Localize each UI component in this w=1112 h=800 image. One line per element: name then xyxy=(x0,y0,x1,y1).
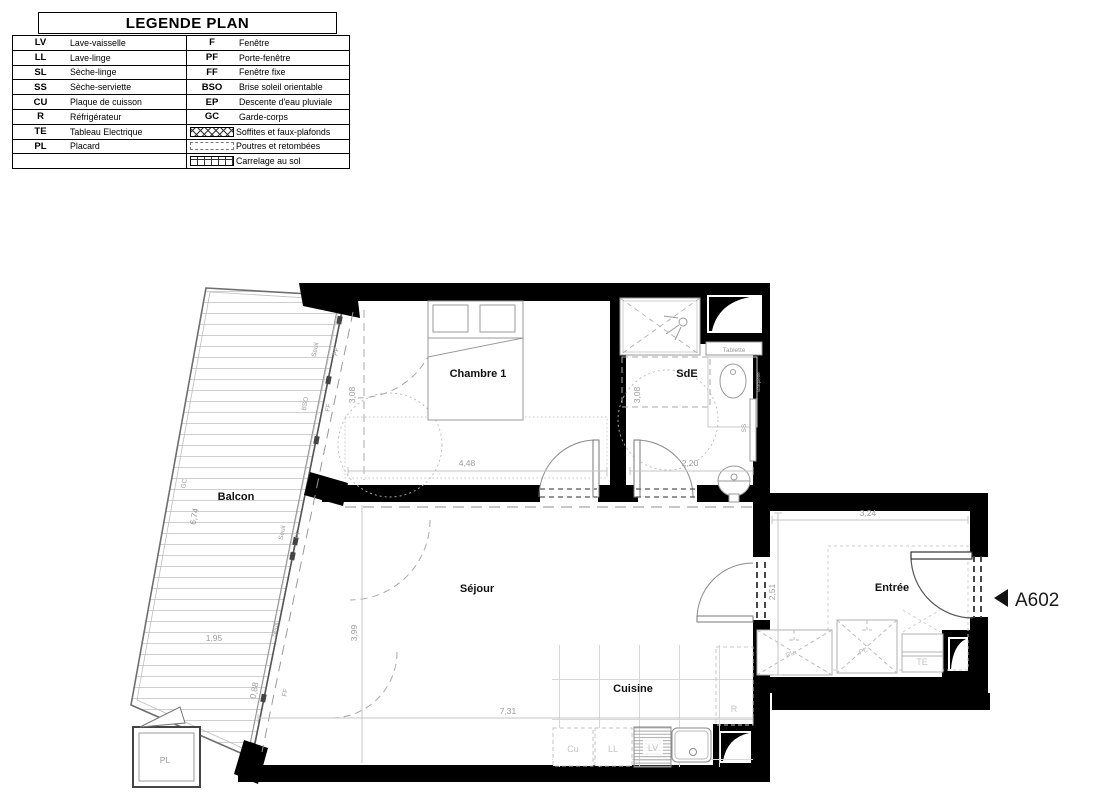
room-label-cuisine: Cuisine xyxy=(613,683,653,695)
legend-label: Lave-vaisselle xyxy=(68,38,186,48)
legend-row: CUPlaque de cuisson EPDescente d'eau plu… xyxy=(13,95,349,110)
legend-row: LVLave-vaisselle FFenêtre xyxy=(13,36,349,51)
wall-entree-right-upper xyxy=(970,511,988,557)
thresholds xyxy=(757,556,981,619)
legend-abbr: F xyxy=(187,37,237,48)
legend-label: Sèche-linge xyxy=(68,67,186,77)
legend-row: SSSèche-serviette BSOBrise soleil orient… xyxy=(13,80,349,95)
bed xyxy=(428,301,523,420)
balcony xyxy=(131,288,345,758)
hob-label: Cu xyxy=(567,744,579,754)
door-leaf-entrance xyxy=(911,552,972,559)
legend-abbr: SL xyxy=(13,67,68,78)
legend-abbr: CU xyxy=(13,97,68,108)
tablette-label: Tablette xyxy=(723,347,746,354)
wall-mid-1 xyxy=(322,485,540,502)
dim-entree-height: 2,51 xyxy=(767,583,777,600)
legend-label: Poutres et retombées xyxy=(234,141,349,151)
legend-label: Tableau Electrique xyxy=(68,127,186,137)
washer-label: LL xyxy=(608,744,618,754)
dim-sejour-height: 3,99 xyxy=(349,624,359,641)
fridge-label: R xyxy=(731,704,738,714)
legend-row: Carrelage au sol xyxy=(13,154,349,168)
entree-fixtures xyxy=(757,610,943,675)
legend-label: Soffites et faux-plafonds xyxy=(234,127,349,137)
facade-ff-2: FF xyxy=(281,688,289,697)
balcony-deck xyxy=(131,288,345,758)
towel-radiator-label: SS xyxy=(741,423,748,432)
room-label-chambre: Chambre 1 xyxy=(450,368,507,380)
legend-abbr: LV xyxy=(13,37,68,48)
legend-abbr: PF xyxy=(187,52,237,63)
dim-chambre-height: 3,08 xyxy=(347,386,357,403)
dim-balcon-width: 1,95 xyxy=(206,633,223,643)
bed-outline xyxy=(428,301,523,420)
legend-row: TETableau Electrique Soffites et faux-pl… xyxy=(13,125,349,140)
pl-balcon-label: PL xyxy=(160,755,171,765)
legend-label: Brise soleil orientable xyxy=(237,82,349,92)
dishwasher-label: LV xyxy=(648,743,658,753)
legend-label: Fenêtre xyxy=(237,38,349,48)
door-arc-entrance xyxy=(911,556,973,618)
legend-label: Carrelage au sol xyxy=(234,156,349,166)
window-swing-sejour-2 xyxy=(331,652,397,718)
legend-label: Garde-corps xyxy=(237,112,349,122)
legend-label: Réfrigérateur xyxy=(68,112,186,122)
wall-facade-junction xyxy=(304,472,348,506)
legend-abbr: R xyxy=(13,111,68,122)
hatch-x-symbol xyxy=(190,127,234,137)
legend-label: Descente d'eau pluviale xyxy=(237,97,349,107)
legend-abbr: TE xyxy=(13,126,68,137)
legend-label: Plaque de cuisson xyxy=(68,97,186,107)
legend-label: Sèche-serviette xyxy=(68,82,186,92)
door-leaf-sejour-entree xyxy=(697,616,753,622)
legend-label: Fenêtre fixe xyxy=(237,67,349,77)
facade-pf-2: PF xyxy=(294,530,302,540)
facade-pf-1: PF xyxy=(332,347,340,357)
dim-sde-height: 3,08 xyxy=(632,386,642,403)
legend-label: Placard xyxy=(68,141,186,151)
dim-sde-width: 2,20 xyxy=(682,458,699,468)
grid-symbol xyxy=(190,156,234,166)
room-label-sde: SdE xyxy=(676,368,697,380)
legend-abbr: GC xyxy=(187,111,237,122)
floor-plan-page: LEGENDE PLAN LVLave-vaisselle FFenêtre L… xyxy=(0,0,1112,800)
window-swing-chambre xyxy=(358,318,438,398)
legend-abbr: SS xyxy=(13,82,68,93)
unit-arrow-icon xyxy=(994,589,1008,607)
vasque-note-label: Barquette xyxy=(756,372,761,392)
dim-chambre-width: 4,48 xyxy=(459,458,476,468)
unit-label: A602 xyxy=(1015,590,1059,611)
legend-row: RRéfrigérateur GCGarde-corps xyxy=(13,110,349,125)
wall-entree-bottom xyxy=(755,677,988,693)
legend-label: Lave-linge xyxy=(68,53,186,63)
legend-abbr: FF xyxy=(187,67,237,78)
room-label-balcon: Balcon xyxy=(218,491,255,503)
room-label-sejour: Séjour xyxy=(460,583,495,595)
legend-abbr: PL xyxy=(13,141,68,152)
legend-row: PLPlacard Poutres et retombées xyxy=(13,140,349,155)
facade-ff-1: FF xyxy=(324,403,332,412)
turning-circle-chambre xyxy=(338,393,442,497)
legend-abbr: EP xyxy=(187,97,237,108)
legend-table: LVLave-vaisselle FFenêtre LLLave-linge P… xyxy=(12,35,350,169)
facade-seuil-3: Seuil xyxy=(271,621,281,637)
legend-abbr: BSO xyxy=(187,82,237,93)
legend-row: SLSèche-linge FFFenêtre fixe xyxy=(13,66,349,81)
te-dashes xyxy=(903,610,940,632)
dim-entree-width: 3,24 xyxy=(860,508,877,518)
wall-mid-2 xyxy=(598,485,638,502)
wall-bottom xyxy=(238,765,770,782)
legend-label: Porte-fenêtre xyxy=(237,53,349,63)
legend-title: LEGENDE PLAN xyxy=(38,12,337,34)
room-label-entree: Entrée xyxy=(875,582,909,594)
unit-tag: A602 xyxy=(994,589,1059,611)
turning-circle-sde xyxy=(618,370,718,470)
towel-radiator xyxy=(750,399,756,461)
dashed-symbol xyxy=(190,142,234,150)
door-arc-sejour-entree xyxy=(697,563,753,619)
legend-row: LLLave-linge PFPorte-fenêtre xyxy=(13,51,349,66)
toilet-stem xyxy=(729,494,739,502)
legend-abbr: LL xyxy=(13,52,68,63)
electrical-panel-label: TE xyxy=(916,657,928,667)
wall-entree-bottom-step xyxy=(772,693,990,710)
sink xyxy=(672,728,711,762)
dim-sejour-width: 7,31 xyxy=(500,706,517,716)
